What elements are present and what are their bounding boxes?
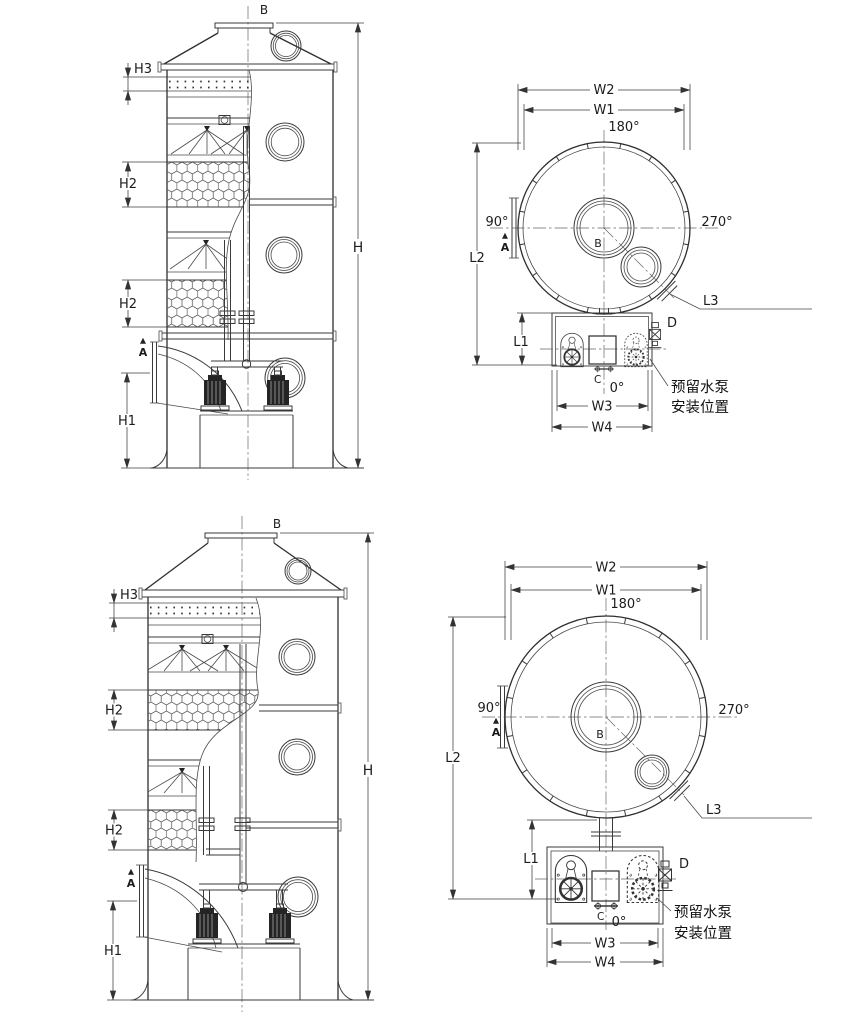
aux-port [621,247,661,287]
air-inlet [136,865,238,952]
recirculation-piping [199,644,341,904]
left-foot [152,449,167,468]
tank-access-plan [589,336,616,364]
scrubber-tower-drawing: H3 H2 H2 H1 H B A [0,0,845,1025]
dim-label-h: H [363,763,374,779]
dim-label-h2: H2 [105,824,123,839]
l3-leader [684,796,812,818]
right-foot [338,980,353,1000]
pump-plan-installed [561,333,583,367]
label-a-plan: A [501,241,510,254]
label-b-plan: B [596,728,604,741]
angle-label-90: 90° [485,215,508,230]
air-inlet [150,342,242,414]
dim-label-h2: H2 [105,704,123,719]
viewport [266,237,302,273]
tower-shell [150,23,364,468]
dim-label-l1: L1 [513,335,529,350]
dim-label-w3: W3 [594,937,615,952]
viewport [266,123,304,161]
pump-note-leader [650,359,668,386]
label-d: D [679,857,689,872]
sight-ports [278,558,318,917]
dim-label-l1: L1 [523,852,539,867]
label-b-plan: B [594,237,602,250]
packing-section-1 [148,690,338,730]
plan-view-lower: W2 W1 180° 90° 270° 0° L2 L1 W3 W4 L3 D … [440,561,812,971]
angle-label-90: 90° [477,701,500,716]
pump-left [201,371,229,410]
dim-label-l2: L2 [469,251,485,266]
front-view-upper: H3 H2 H2 H1 H B A [113,3,370,480]
tank-access-plan [592,871,619,901]
dim-label-w1: W1 [593,103,614,118]
pump-plinth [188,944,300,1000]
left-foot [133,980,148,1000]
pump-platform-plan [535,847,676,924]
angle-label-0: 0° [612,915,627,930]
dimensions-front-upper: H3 H2 H2 H1 H B A [113,3,370,468]
viewport [279,739,315,775]
dim-label-l2: L2 [445,751,461,766]
l3-leader [670,294,812,309]
angle-label-0: 0° [610,381,625,396]
right-foot [333,449,348,468]
port-label-b: B [273,517,281,531]
pump-note-line1: 预留水泵 [674,904,732,921]
pump-plinth [200,411,293,468]
dim-label-w2: W2 [593,83,614,98]
pump-right [266,904,294,943]
dim-label-l3: L3 [706,803,722,818]
label-a-plan: A [492,726,501,739]
dim-label-h2: H2 [119,177,137,192]
viewport [271,31,301,61]
dim-label-h1: H1 [118,414,136,429]
dim-label-w3: W3 [591,400,612,415]
front-view-lower: H3 H2 H2 H1 H B A [99,516,380,1012]
pump-plan-reserved [625,333,647,367]
dim-label-l3: L3 [703,294,719,309]
section-label-a: A [127,877,136,890]
label-c: C [597,911,604,923]
drawing-sheet: H3 H2 H2 H1 H B A [0,0,845,1025]
section-label-a: A [139,346,148,359]
drain-valve-plan [649,323,662,348]
pump-right [264,371,292,410]
angle-label-270: 270° [718,703,749,718]
pump-note-line2: 安装位置 [671,399,729,416]
dimensions-plan-lower: W2 W1 180° 90° 270° 0° L2 L1 W3 W4 L3 D … [440,561,750,971]
sight-ports [265,31,305,398]
angle-label-270: 270° [701,215,732,230]
angle-label-180: 180° [608,120,639,135]
dim-label-h3: H3 [134,62,152,77]
label-c: C [594,374,601,386]
dim-label-w4: W4 [594,956,615,971]
dim-label-w4: W4 [591,421,612,436]
dim-label-w2: W2 [595,561,616,576]
pump-note-line2: 安装位置 [674,925,732,942]
pump-note-line1: 预留水泵 [671,379,729,396]
body-flange-joints [259,703,341,713]
dimensions-plan-upper: W2 W1 180° 90° 270° 0° L2 L1 W3 W4 L3 D … [464,83,733,436]
angle-label-180: 180° [610,597,641,612]
label-d: D [667,316,677,331]
dim-label-h3: H3 [120,588,138,603]
dim-label-h: H [353,240,364,256]
aux-port [635,755,669,789]
dim-label-h1: H1 [104,944,122,959]
drain-valve-plan [658,861,673,891]
dim-label-h2: H2 [119,297,137,312]
plan-view-upper: W2 W1 180° 90° 270° 0° L2 L1 W3 W4 L3 D … [464,83,812,436]
port-label-b: B [260,3,268,17]
viewport [279,639,315,675]
viewport [285,558,311,584]
